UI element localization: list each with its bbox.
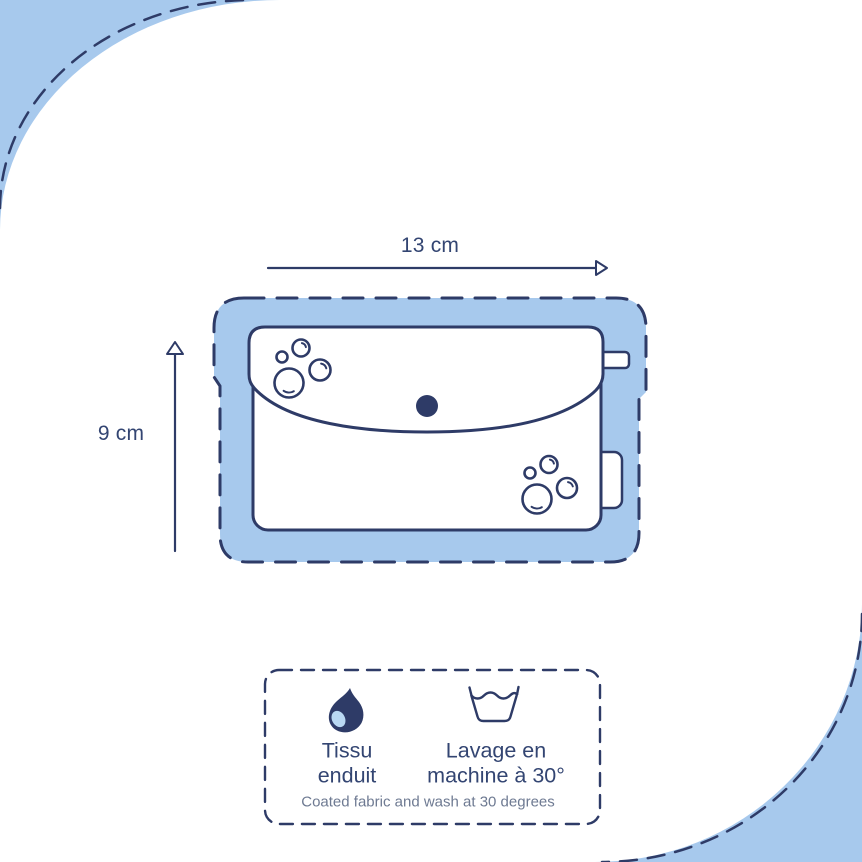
width-dimension-label: 13 cm xyxy=(401,234,459,258)
fabric-type-label: Tissu enduit xyxy=(318,739,377,788)
pouch-illustration xyxy=(214,298,646,562)
product-infographic: 13 cm 9 cm Tissu enduit Lavage en machin… xyxy=(0,0,862,862)
wash-instruction-line2: machine à 30° xyxy=(427,763,565,788)
wash-instruction-label: Lavage en machine à 30° xyxy=(427,739,565,788)
snap-button xyxy=(416,395,438,417)
wash-instruction-line1: Lavage en xyxy=(427,739,565,764)
fabric-type-line1: Tissu xyxy=(318,739,377,764)
english-translation-label: Coated fabric and wash at 30 degrees xyxy=(301,794,555,811)
height-dimension-label: 9 cm xyxy=(98,422,144,446)
fabric-type-line2: enduit xyxy=(318,763,377,788)
